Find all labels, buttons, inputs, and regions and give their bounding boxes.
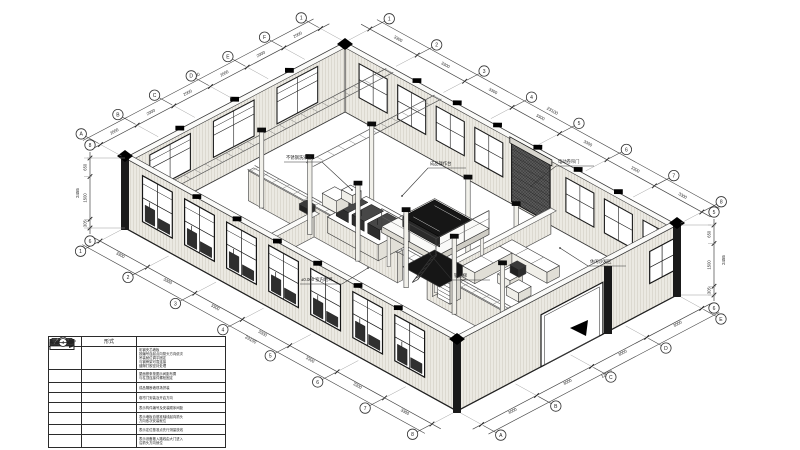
svg-text:2455: 2455 [75, 188, 80, 198]
legend-description: 卷帘门安装及开启方向 [137, 393, 226, 403]
svg-text:6: 6 [713, 306, 716, 312]
legend-form [82, 425, 137, 435]
svg-text:电动卷帘门: 电动卷帘门 [558, 158, 579, 165]
svg-text:3300: 3300 [440, 60, 451, 69]
column-cap [354, 283, 363, 288]
column-cap [464, 175, 473, 180]
svg-text:4: 4 [221, 327, 224, 333]
legend-symbol [49, 393, 82, 403]
legend-symbol [49, 370, 82, 383]
column [356, 185, 360, 261]
svg-text:±0.000 室内地坪: ±0.000 室内地坪 [301, 276, 333, 283]
svg-text:2000: 2000 [219, 69, 230, 78]
legend-description: 成品隔断墙现场拼装 [137, 383, 226, 393]
svg-text:不锈钢洗涤台: 不锈钢洗涤台 [286, 154, 312, 161]
svg-text:8: 8 [89, 143, 92, 149]
legend-description: 表示定位基准点先行测量放线 [137, 425, 226, 435]
column [259, 132, 263, 208]
column-cap [498, 260, 507, 265]
svg-text:C: C [153, 93, 157, 99]
column-cap [313, 261, 322, 266]
legend-description: 屋面檩条按图示间距布置与柱顶连接件螺栓固定 [137, 370, 226, 383]
legend-row: 3表示定位基准点先行测量放线 [49, 425, 226, 435]
column [308, 159, 312, 235]
legend-form [82, 393, 137, 403]
arrow-long-icon [48, 336, 78, 349]
svg-text:3300: 3300 [258, 329, 269, 338]
legend-row: 成品隔断墙现场拼装 [49, 383, 226, 393]
svg-text:3300: 3300 [535, 113, 546, 122]
legend-row: 1200表示构件编号及安装顺序间距 [49, 403, 226, 413]
svg-text:23100: 23100 [244, 334, 258, 345]
leader-annotation: 不锈钢洗涤台 [284, 154, 353, 191]
column-cap [413, 78, 422, 83]
column-cap [367, 122, 376, 127]
svg-text:3300: 3300 [210, 303, 221, 312]
drawing-canvas: 12000ABCDEF12000200020002000200020002310… [0, 0, 800, 450]
svg-text:3: 3 [483, 69, 486, 75]
legend-description: 表示设备搬入路线由大门进入沿箭头方向就位 [137, 435, 226, 448]
svg-text:1500: 1500 [707, 260, 712, 270]
legend-form [82, 370, 137, 383]
svg-text:1: 1 [79, 249, 82, 255]
svg-text:3300: 3300 [630, 165, 641, 174]
svg-text:C: C [609, 375, 613, 381]
svg-text:D: D [189, 74, 193, 80]
column-cap [192, 194, 201, 199]
column-cap [453, 100, 462, 105]
column-cap [175, 126, 184, 131]
svg-text:3300: 3300 [352, 381, 363, 390]
svg-text:2000: 2000 [256, 49, 267, 58]
svg-text:650: 650 [707, 230, 712, 238]
svg-text:休闲沙发区: 休闲沙发区 [590, 258, 612, 265]
column-cap [512, 201, 521, 206]
svg-text:650: 650 [83, 163, 88, 171]
svg-text:8: 8 [720, 200, 723, 206]
legend-table: 图例形式彩钢夹芯墙板按编号自起点向箭头方向依次吊装就位调平固定与钢骨架可靠连接缝… [48, 336, 226, 448]
svg-text:305: 305 [83, 220, 88, 228]
legend-description: 彩钢夹芯墙板按编号自起点向箭头方向依次吊装就位调平固定与钢骨架可靠连接缝隙打胶密… [137, 347, 226, 370]
svg-text:3300: 3300 [400, 407, 411, 416]
legend-header-form: 形式 [82, 337, 137, 347]
legend-symbol: 2 [49, 413, 82, 425]
corner-column [673, 221, 681, 297]
column-cap [450, 234, 459, 239]
svg-text:23100: 23100 [546, 106, 560, 117]
svg-text:2000: 2000 [146, 107, 157, 116]
column-cap [273, 239, 282, 244]
legend-header-desc [137, 337, 226, 347]
svg-text:2455: 2455 [721, 255, 726, 265]
column-cap [493, 123, 502, 128]
platform-leg [387, 233, 390, 267]
legend-row: 屋面檩条按图示间距布置与柱顶连接件螺栓固定 [49, 370, 226, 383]
svg-text:8: 8 [411, 432, 414, 438]
svg-text:305: 305 [707, 287, 712, 295]
svg-text:7: 7 [672, 173, 675, 179]
svg-text:3000: 3000 [617, 348, 628, 357]
svg-text:3300: 3300 [393, 34, 404, 43]
svg-text:3000: 3000 [562, 377, 573, 386]
svg-text:2000: 2000 [109, 127, 120, 136]
legend-form: 200 [82, 403, 137, 413]
column-cap [394, 305, 403, 310]
column-cap [402, 207, 411, 212]
column-cap [285, 68, 294, 73]
svg-text:3000: 3000 [507, 406, 518, 415]
svg-text:2000: 2000 [292, 30, 303, 39]
legend-symbol [49, 383, 82, 393]
column-cap [533, 145, 542, 150]
svg-text:1: 1 [388, 17, 391, 23]
column-cap [257, 128, 266, 133]
svg-text:2: 2 [127, 275, 130, 281]
svg-text:3000: 3000 [672, 319, 683, 328]
legend-symbol: 4 [49, 435, 82, 448]
svg-text:3: 3 [174, 301, 177, 307]
door-jamb-column [604, 266, 612, 334]
svg-text:3300: 3300 [115, 250, 126, 259]
svg-text:成品操作台: 成品操作台 [430, 160, 451, 167]
svg-text:4: 4 [530, 95, 533, 101]
svg-text:F: F [263, 35, 266, 41]
svg-text:2000: 2000 [182, 88, 193, 97]
svg-text:7: 7 [364, 406, 367, 412]
legend-row: 彩钢夹芯墙板按编号自起点向箭头方向依次吊装就位调平固定与钢骨架可靠连接缝隙打胶密… [49, 347, 226, 370]
legend-row: 2表示墙板自基准轴线起向箭头方向依次安装就位 [49, 413, 226, 425]
low-wall-end [397, 250, 402, 283]
svg-text:1: 1 [300, 16, 303, 22]
legend-form [82, 435, 137, 448]
column [404, 212, 408, 288]
svg-text:3300: 3300 [678, 191, 689, 200]
svg-text:6: 6 [89, 239, 92, 245]
vertical-dimension-chain: 6501500305245556 [681, 207, 726, 313]
svg-text:3300: 3300 [583, 139, 594, 148]
svg-text:6: 6 [625, 147, 628, 153]
legend: 图例形式彩钢夹芯墙板按编号自起点向箭头方向依次吊装就位调平固定与钢骨架可靠连接缝… [48, 336, 226, 448]
column-cap [354, 181, 363, 186]
column-cap [574, 167, 583, 172]
svg-text:5: 5 [713, 210, 716, 216]
svg-text:3300: 3300 [305, 355, 316, 364]
svg-text:5: 5 [269, 354, 272, 360]
column-cap [233, 216, 242, 221]
column [369, 126, 373, 202]
legend-row: 4表示设备搬入路线由大门进入沿箭头方向就位 [49, 435, 226, 448]
legend-description: 表示墙板自基准轴线起向箭头方向依次安装就位 [137, 413, 226, 425]
svg-text:6: 6 [316, 380, 319, 386]
column-cap [230, 97, 239, 102]
svg-text:5: 5 [578, 121, 581, 127]
legend-description: 表示构件编号及安装顺序间距 [137, 403, 226, 413]
svg-text:钢直梯: 钢直梯 [454, 272, 468, 279]
legend-row: 卷帘门安装及开启方向 [49, 393, 226, 403]
corner-column [121, 154, 129, 230]
svg-text:D: D [664, 346, 668, 352]
legend-symbol: 1 [49, 403, 82, 413]
svg-text:2: 2 [435, 43, 438, 49]
column-cap [614, 189, 623, 194]
svg-text:1500: 1500 [83, 193, 88, 203]
legend-symbol: 3 [49, 425, 82, 435]
legend-form [82, 383, 137, 393]
legend-form [82, 413, 137, 425]
corner-column [453, 337, 461, 413]
svg-text:3300: 3300 [488, 87, 499, 96]
svg-text:3300: 3300 [163, 277, 174, 286]
legend-form [82, 347, 137, 370]
